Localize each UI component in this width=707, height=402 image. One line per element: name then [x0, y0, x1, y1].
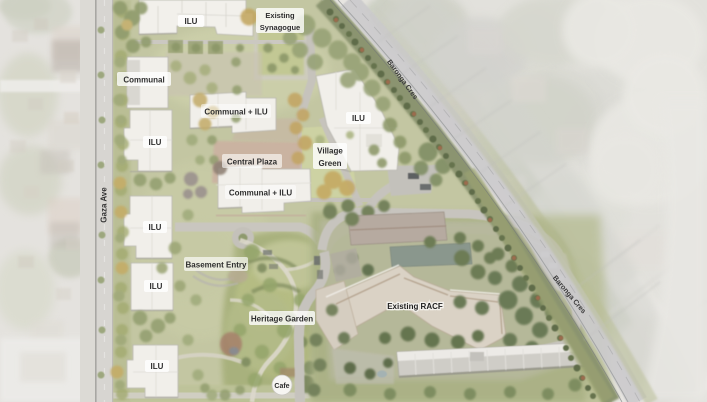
svg-text:ILU: ILU	[149, 223, 162, 232]
svg-text:Communal: Communal	[123, 76, 164, 85]
svg-text:Heritage Garden: Heritage Garden	[251, 315, 313, 324]
svg-text:Existing: Existing	[265, 11, 295, 20]
svg-text:Gaza Ave: Gaza Ave	[100, 187, 109, 223]
svg-text:ILU: ILU	[185, 17, 198, 26]
svg-text:Cafe: Cafe	[274, 383, 289, 390]
svg-text:ILU: ILU	[149, 138, 162, 147]
svg-text:Existing RACF: Existing RACF	[387, 302, 443, 311]
svg-text:Synagogue: Synagogue	[260, 23, 300, 32]
svg-text:Communal + ILU: Communal + ILU	[204, 108, 268, 117]
svg-text:ILU: ILU	[151, 362, 164, 371]
svg-text:ILU: ILU	[352, 114, 365, 123]
svg-text:Central Plaza: Central Plaza	[227, 158, 278, 167]
svg-text:Communal + ILU: Communal + ILU	[229, 189, 293, 198]
svg-text:Basement Entry: Basement Entry	[186, 261, 247, 270]
svg-text:Village: Village	[317, 147, 343, 156]
svg-text:ILU: ILU	[150, 282, 163, 291]
svg-text:Green: Green	[318, 159, 341, 168]
